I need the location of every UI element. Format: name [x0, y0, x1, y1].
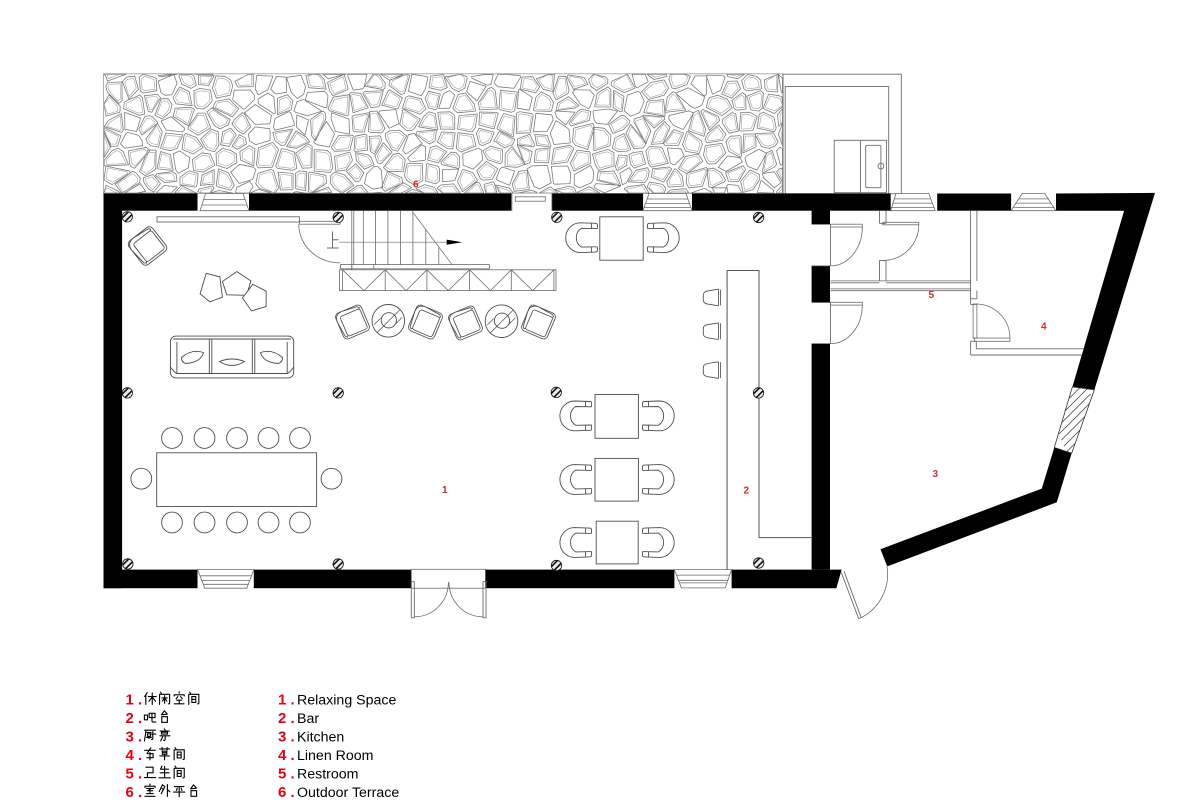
svg-text:6 .: 6 . [278, 784, 295, 801]
svg-text:3 .: 3 . [278, 729, 295, 746]
svg-text:2 .: 2 . [278, 710, 295, 727]
svg-text:Bar: Bar [297, 711, 319, 727]
svg-text:1: 1 [442, 485, 448, 496]
svg-text:Outdoor Terrace: Outdoor Terrace [297, 785, 399, 801]
svg-text:4: 4 [1041, 322, 1047, 333]
svg-text:Restroom: Restroom [297, 767, 359, 783]
svg-text:4 .: 4 . [126, 747, 143, 764]
svg-text:5: 5 [929, 290, 935, 301]
svg-text:6 .: 6 . [126, 784, 143, 801]
svg-text:1 .: 1 . [278, 692, 295, 709]
svg-text:5 .: 5 . [126, 766, 143, 783]
svg-text:1 .: 1 . [126, 692, 143, 709]
svg-text:Kitchen: Kitchen [297, 730, 344, 746]
svg-text:3 .: 3 . [126, 729, 143, 746]
svg-text:Relaxing Space: Relaxing Space [297, 693, 396, 709]
svg-text:4 .: 4 . [278, 747, 295, 764]
svg-text:Linen Room: Linen Room [297, 748, 374, 764]
svg-text:6: 6 [413, 180, 419, 191]
svg-text:2 .: 2 . [126, 710, 143, 727]
svg-text:5 .: 5 . [278, 766, 295, 783]
svg-text:2: 2 [744, 486, 750, 497]
svg-text:3: 3 [933, 469, 939, 480]
